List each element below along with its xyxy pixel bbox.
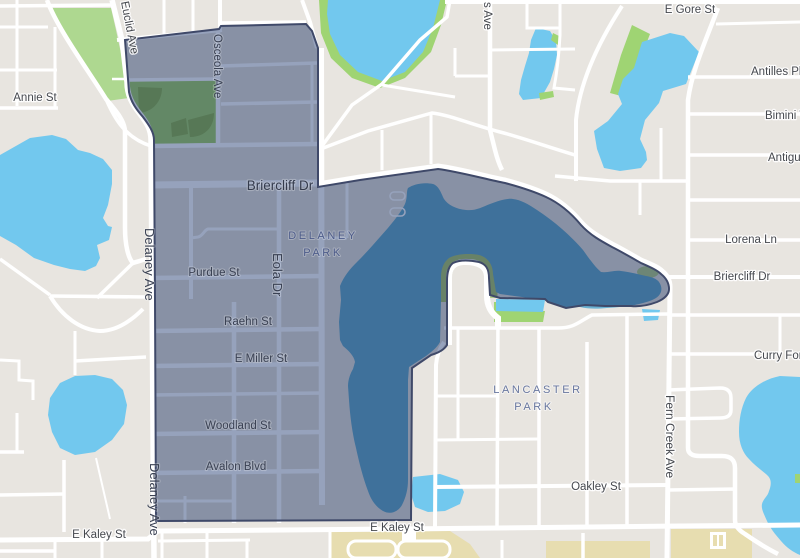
svg-text:E Kaley St: E Kaley St xyxy=(72,529,126,541)
svg-text:Oakley St: Oakley St xyxy=(571,481,622,493)
svg-text:Bimini W: Bimini W xyxy=(765,110,800,122)
svg-text:Briercliff Dr: Briercliff Dr xyxy=(714,271,771,283)
svg-text:Osceola Ave: Osceola Ave xyxy=(211,34,223,98)
svg-text:Purdue St: Purdue St xyxy=(188,267,240,279)
svg-text:E Kaley St: E Kaley St xyxy=(370,522,424,534)
svg-text:LANCASTER: LANCASTER xyxy=(493,384,582,396)
svg-text:s Ave: s Ave xyxy=(481,2,493,30)
svg-text:Curry Ford: Curry Ford xyxy=(754,350,800,362)
svg-text:PARK: PARK xyxy=(303,247,343,259)
svg-text:Annie St: Annie St xyxy=(13,92,57,104)
svg-text:Antigua: Antigua xyxy=(768,152,800,164)
svg-text:Woodland St: Woodland St xyxy=(205,420,271,432)
svg-text:PARK: PARK xyxy=(514,401,554,413)
svg-text:Eola Dr: Eola Dr xyxy=(270,253,285,297)
svg-text:DELANEY: DELANEY xyxy=(288,230,358,242)
svg-text:Fern Creek Ave: Fern Creek Ave xyxy=(663,395,677,478)
svg-text:Raehn St: Raehn St xyxy=(224,316,273,328)
svg-text:Avalon Blvd: Avalon Blvd xyxy=(206,461,267,473)
svg-text:E Gore St: E Gore St xyxy=(665,4,716,16)
svg-text:Delaney Ave: Delaney Ave xyxy=(142,228,157,301)
svg-text:Delaney Ave: Delaney Ave xyxy=(147,463,162,536)
svg-text:E Miller St: E Miller St xyxy=(235,353,288,365)
svg-text:Briercliff Dr: Briercliff Dr xyxy=(247,178,314,193)
svg-text:Lorena Ln: Lorena Ln xyxy=(725,234,777,246)
svg-text:Antilles Pl: Antilles Pl xyxy=(751,66,800,78)
